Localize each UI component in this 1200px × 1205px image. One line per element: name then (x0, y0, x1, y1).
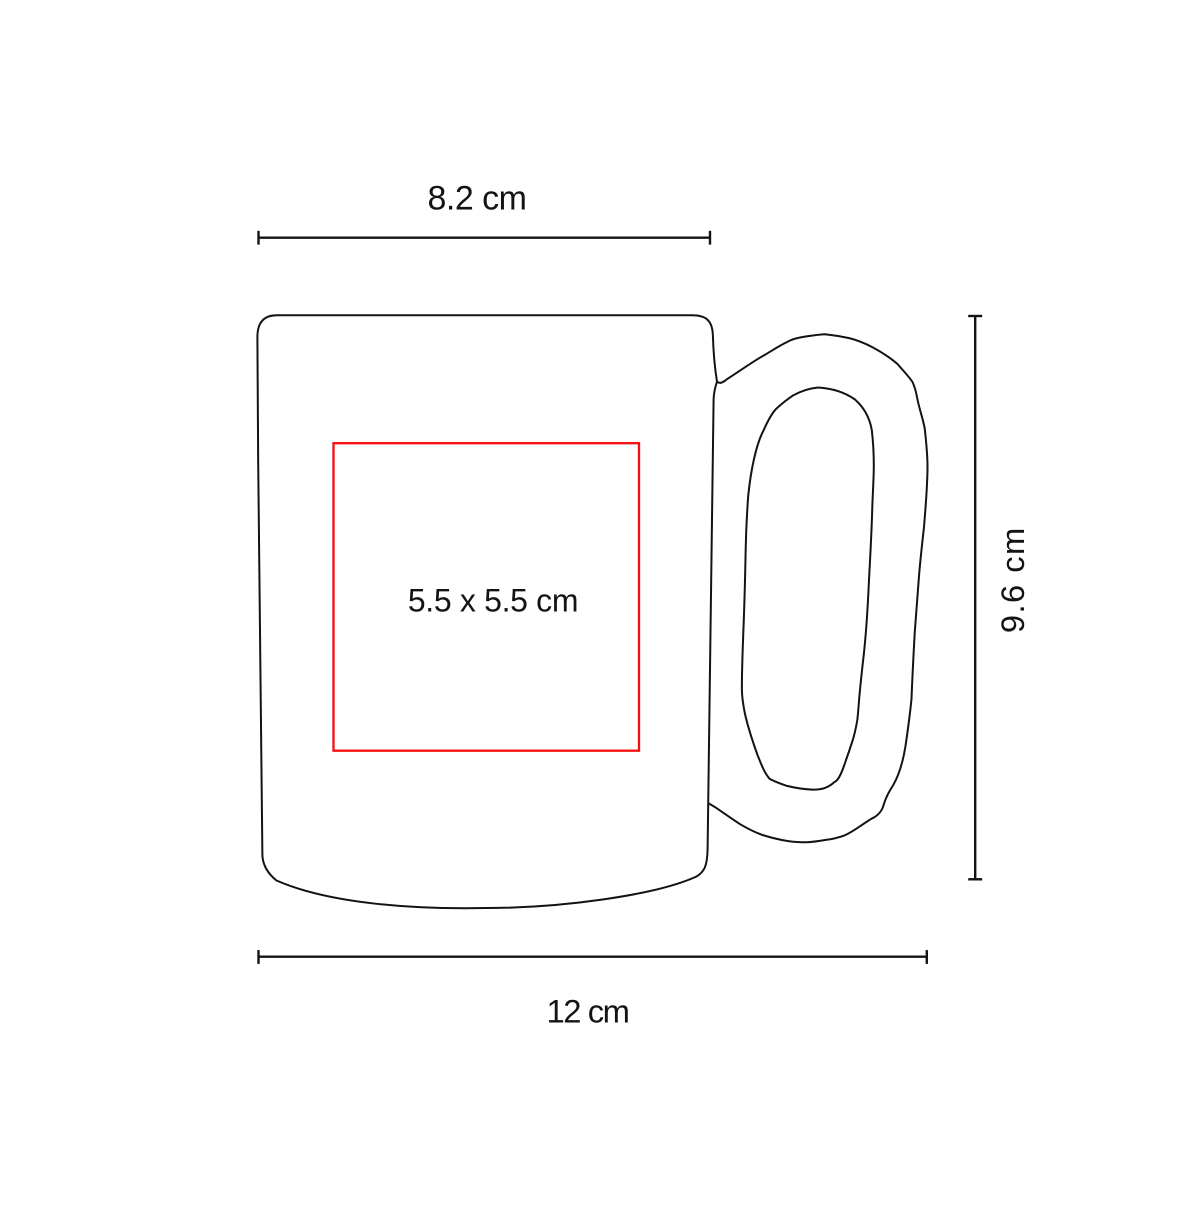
svg-text:8.2 cm: 8.2 cm (427, 180, 526, 218)
svg-text:9.6 cm: 9.6 cm (994, 526, 1031, 633)
svg-text:5.5 x 5.5 cm: 5.5 x 5.5 cm (408, 582, 578, 618)
svg-text:12 cm: 12 cm (546, 993, 628, 1030)
